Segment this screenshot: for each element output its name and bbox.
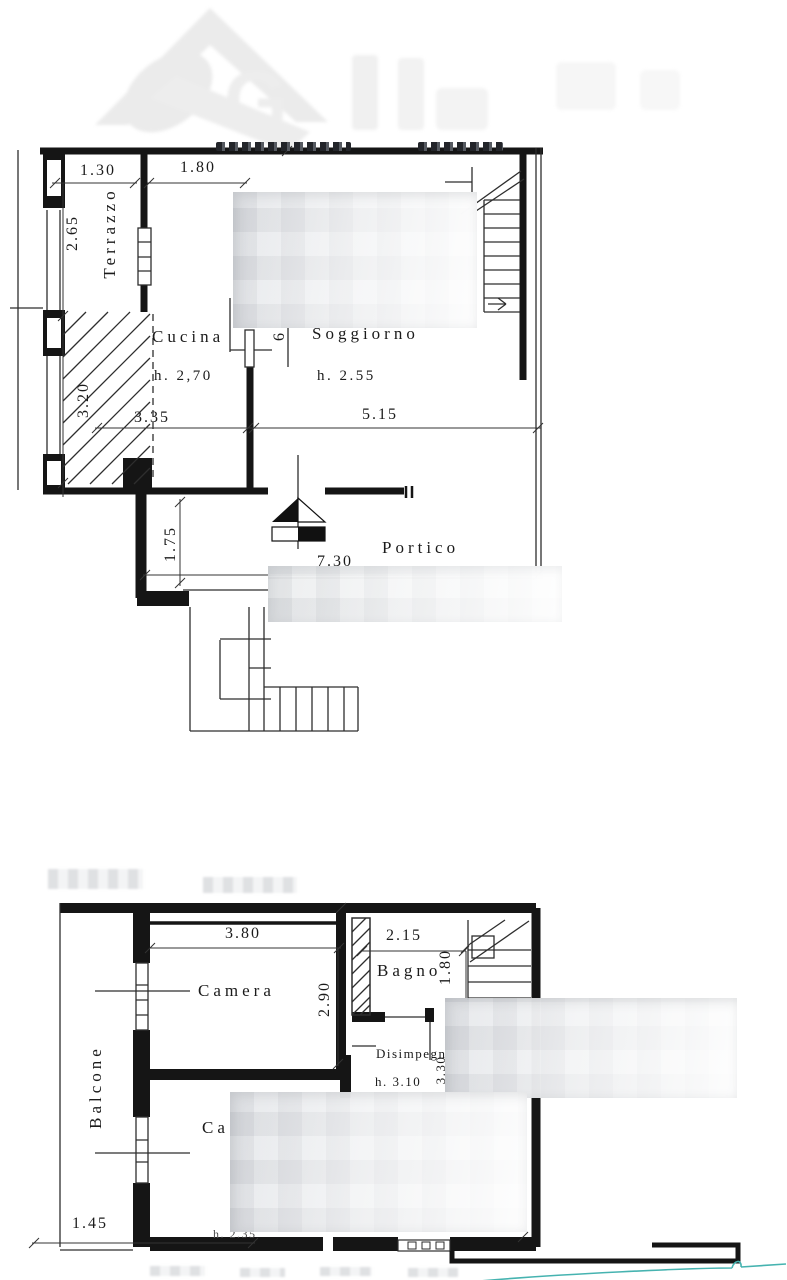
redaction-mosaic-disimpegno [445, 998, 737, 1098]
room-label-balcone: Balcone [86, 1045, 106, 1129]
floorplan-scan-page: G [0, 0, 787, 1280]
redaction-mosaic-camera [230, 1092, 527, 1232]
dimension-ramp-length: 3.20 [75, 382, 93, 418]
room-label-terrazzo: Terrazzo [100, 187, 120, 278]
height-label-disimpegno: h. 3.10 [375, 1074, 421, 1090]
redaction-mosaic-portico [268, 566, 562, 622]
dimension-terrace-width: 1.30 [80, 162, 116, 180]
faint-smudge [150, 1266, 205, 1276]
redaction-mosaic-upper [233, 192, 477, 328]
room-label-bagno: Bagno [377, 961, 441, 981]
dimension-portico-depth: 1.75 [162, 526, 180, 562]
faint-smudge [320, 1267, 372, 1276]
dimension-balcony-width: 1.45 [72, 1215, 108, 1233]
dimension-door-width: 6 [271, 331, 289, 341]
dimension-camera-depth: 2.90 [316, 981, 334, 1017]
dimension-stair-width: 1.80 [437, 949, 455, 985]
faint-smudge [203, 877, 297, 893]
room-label-camera2: Ca [202, 1118, 229, 1138]
door-direction-marker [272, 498, 325, 541]
room-label-portico: Portico [382, 538, 459, 558]
dimension-camera-width: 3.80 [225, 925, 261, 943]
redacted-text-strip [418, 142, 503, 151]
dimension-terrace-length: 2.65 [64, 215, 82, 251]
redacted-text-strip [216, 142, 351, 151]
faint-smudge [408, 1268, 458, 1277]
dimension-bagno-width: 2.15 [386, 927, 422, 945]
height-label-soggiorno: h. 2.55 [317, 368, 376, 385]
dimension-living-width: 5.15 [362, 406, 398, 424]
height-label-cucina: h. 2,70 [154, 368, 213, 385]
room-label-cucina: Cucina [152, 327, 224, 347]
dimension-kitchen-width: 3.35 [134, 409, 170, 427]
room-label-camera: Camera [198, 981, 275, 1001]
faint-smudge [240, 1268, 285, 1277]
faint-smudge [48, 869, 143, 889]
teal-annotation-line [480, 1261, 786, 1280]
dimension-opening-width: 1.80 [180, 159, 216, 177]
